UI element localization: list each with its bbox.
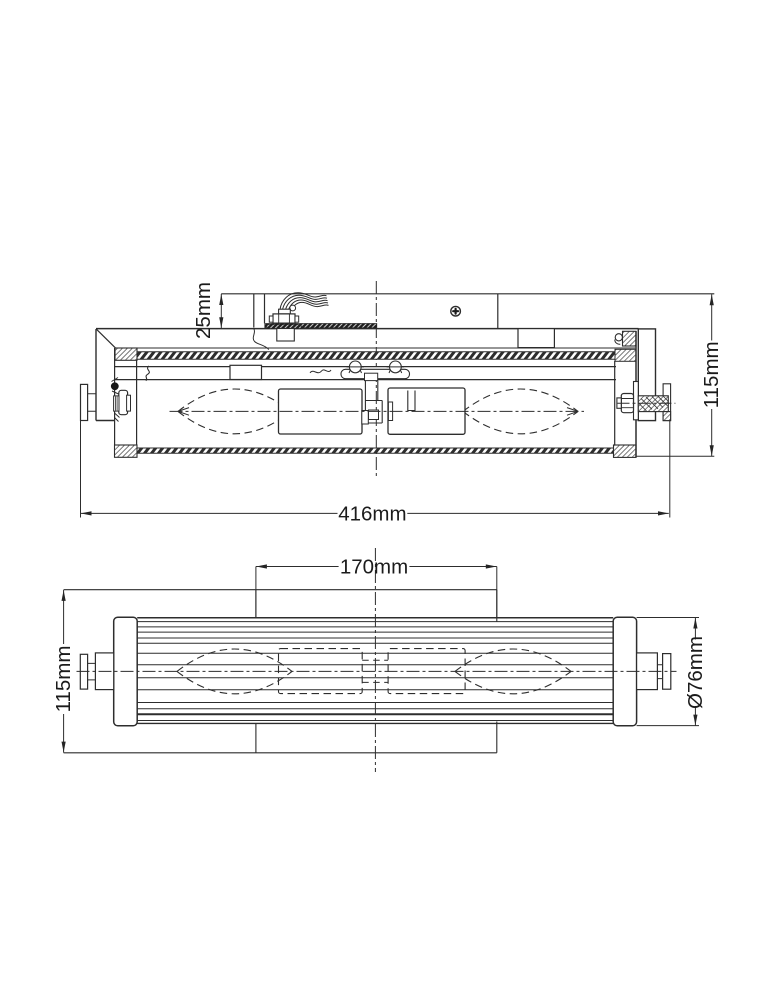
svg-text:Ø76mm: Ø76mm [684, 636, 707, 709]
svg-text:170mm: 170mm [340, 556, 408, 579]
svg-text:115mm: 115mm [52, 646, 75, 713]
svg-text:416mm: 416mm [338, 502, 406, 525]
svg-text:25mm: 25mm [192, 282, 215, 339]
svg-text:115mm: 115mm [700, 341, 723, 408]
